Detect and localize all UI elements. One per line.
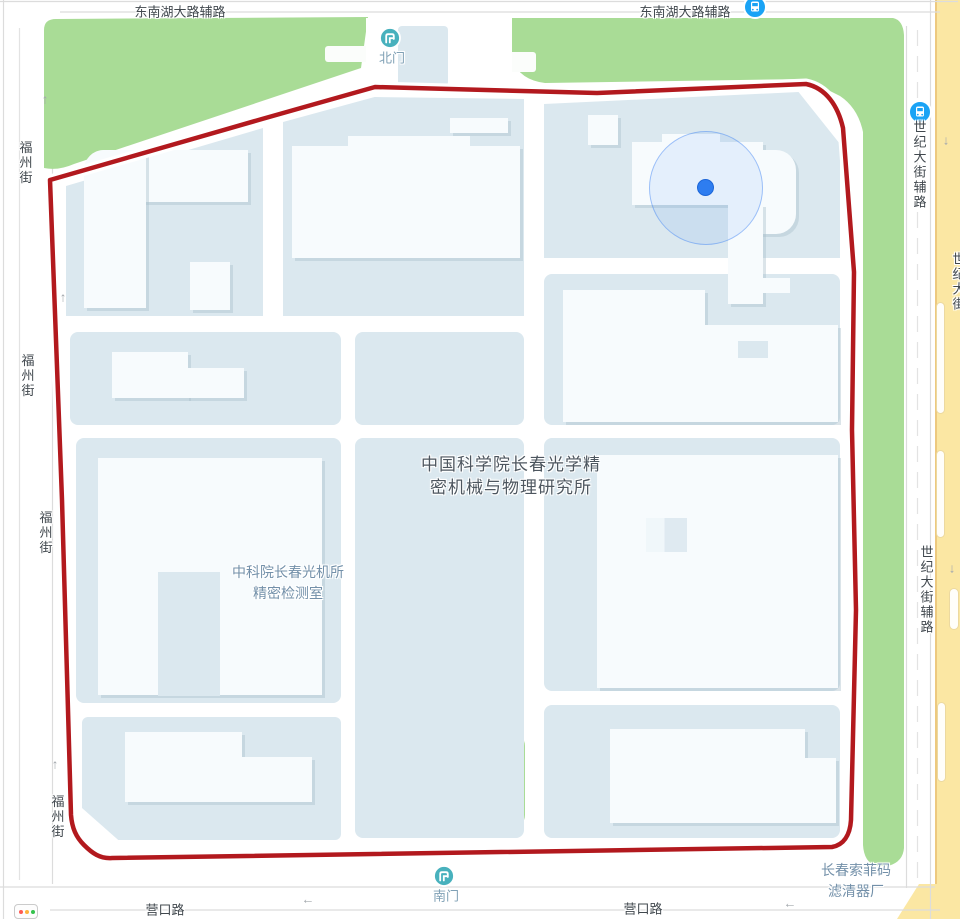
parcel [398, 26, 448, 86]
road-label-shiji-service: 世纪大街辅路 [917, 545, 936, 635]
poi-label-factory: 长春索菲码 滤清器厂 [821, 860, 891, 902]
building [84, 150, 146, 308]
north-gate-label: 北门 [379, 48, 405, 67]
lane-arrow-up: ↑ [60, 290, 67, 305]
highway-corner [897, 884, 937, 919]
building [125, 732, 242, 802]
road-label-shiji-main: 世纪大街 [949, 252, 960, 312]
road-label-shiji-service: 世纪大街辅路 [910, 120, 929, 210]
lane-marking [937, 702, 946, 782]
north-gate-icon[interactable] [378, 26, 402, 50]
building-courtyard [158, 572, 220, 696]
building [740, 278, 790, 293]
building [242, 757, 312, 802]
lane-arrow-left: ← [784, 896, 797, 911]
lane-marking [949, 588, 959, 630]
lane-arrow-down: ↓ [949, 561, 956, 576]
parcel [355, 332, 524, 425]
poi-label-lab-line2: 精密检测室 [232, 583, 344, 604]
building [705, 325, 838, 422]
lane-arrow-left: ← [302, 892, 315, 907]
access-road [486, 18, 512, 95]
road-label-fuzhou: 福州街 [18, 354, 37, 399]
building [292, 146, 520, 258]
building [190, 262, 230, 310]
road-label-dongnanhu: 东南湖大路辅路 [639, 2, 730, 21]
building [758, 150, 796, 234]
bus-stop-icon[interactable] [742, 0, 768, 20]
road-label-fuzhou: 福州街 [48, 795, 67, 840]
poi-label-lab: 中科院长春光机所 精密检测室 [232, 562, 344, 604]
road-label-dongnanhu: 东南湖大路辅路 [134, 2, 225, 21]
road-label-yingkou: 营口路 [145, 900, 184, 919]
road-label-yingkou: 营口路 [623, 899, 662, 918]
poi-label-factory-line1: 长春索菲码 [821, 860, 891, 881]
building-annex [646, 518, 687, 552]
poi-label-institute-line1: 中国科学院长春光学精 [421, 453, 601, 476]
lane-arrow-up: ↑ [52, 757, 59, 772]
traffic-light-icon [14, 904, 38, 919]
poi-label-factory-line2: 滤清器厂 [821, 881, 891, 902]
building [610, 729, 805, 823]
building [112, 352, 188, 398]
building [186, 368, 244, 398]
road-label-fuzhou: 福州街 [36, 511, 55, 556]
poi-label-institute: 中国科学院长春光学精 密机械与物理研究所 [421, 453, 601, 499]
lane-arrow-up: ↑ [42, 92, 49, 107]
poi-label-institute-line2: 密机械与物理研究所 [421, 476, 601, 499]
poi-label-lab-line1: 中科院长春光机所 [232, 562, 344, 583]
building-courtyard [738, 341, 768, 358]
building [348, 136, 470, 150]
lane-marking [936, 450, 945, 538]
map-canvas[interactable]: ↑ ↑ ↑ ← ← ↓ ↓ 东南湖大路辅路 东南湖大路辅路 福州街 福州街 福州… [0, 0, 960, 919]
building [805, 758, 836, 823]
south-gate-label: 南门 [433, 886, 459, 905]
lane-arrow-down: ↓ [943, 133, 950, 148]
road-label-fuzhou: 福州街 [16, 141, 35, 186]
building [563, 290, 705, 422]
access-road [450, 18, 472, 95]
south-gate-icon[interactable] [432, 864, 456, 888]
building [588, 115, 618, 145]
building [597, 455, 838, 688]
location-dot [697, 179, 714, 196]
building [450, 118, 508, 133]
lane-marking [936, 302, 945, 414]
